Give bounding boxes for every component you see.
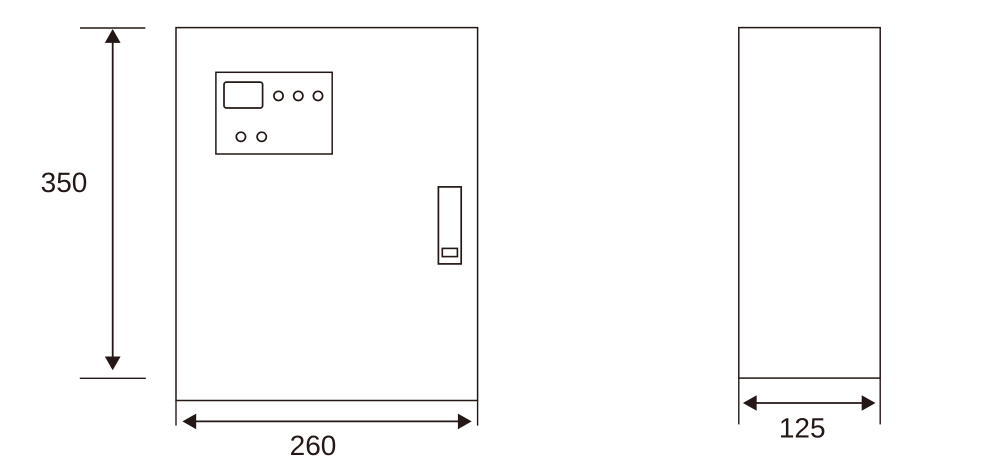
svg-text:350: 350 xyxy=(41,167,88,198)
svg-text:125: 125 xyxy=(779,412,826,443)
svg-text:260: 260 xyxy=(290,430,337,461)
